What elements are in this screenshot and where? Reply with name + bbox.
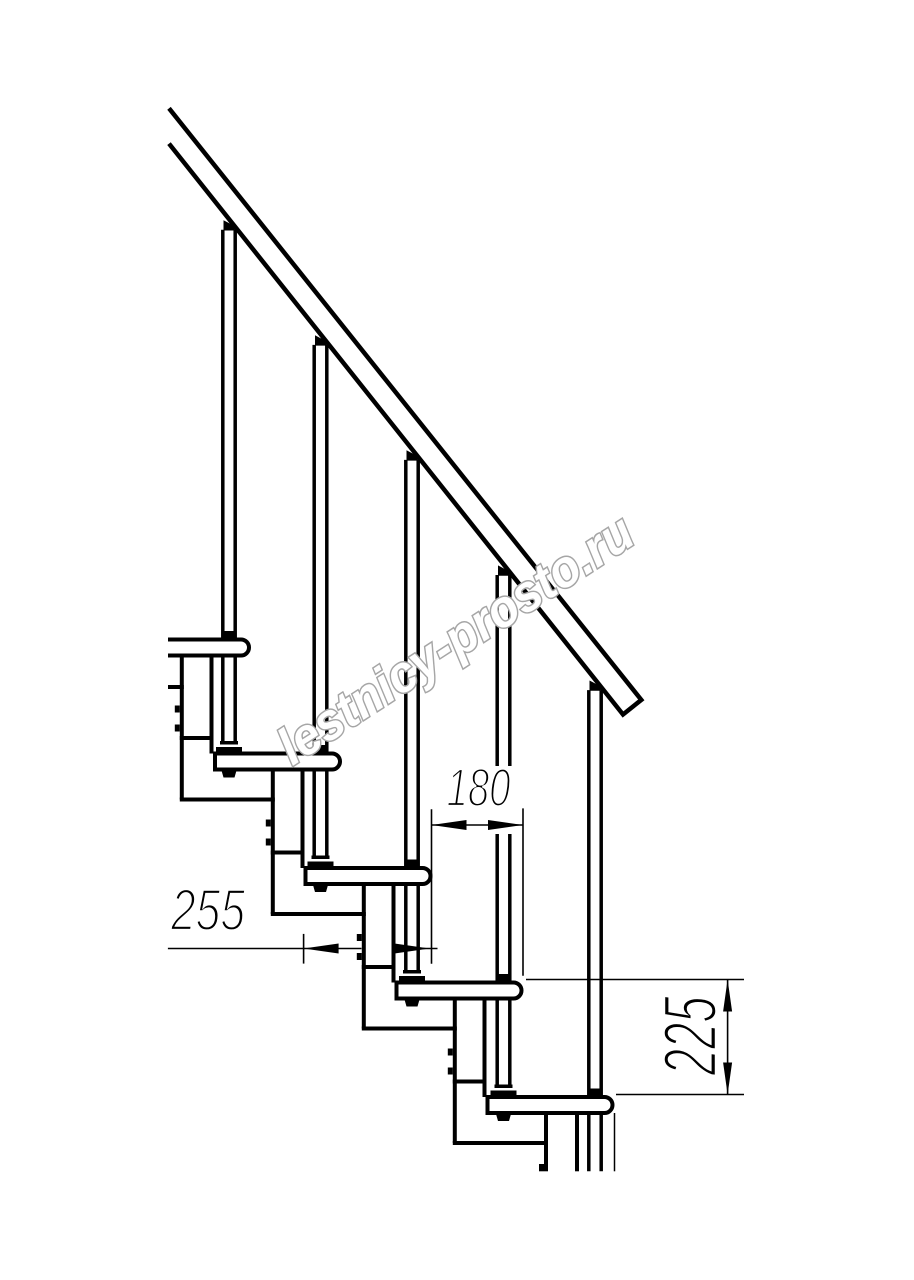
svg-text:180: 180 — [447, 758, 511, 818]
svg-text:225: 225 — [648, 996, 732, 1076]
svg-text:255: 255 — [170, 878, 245, 943]
